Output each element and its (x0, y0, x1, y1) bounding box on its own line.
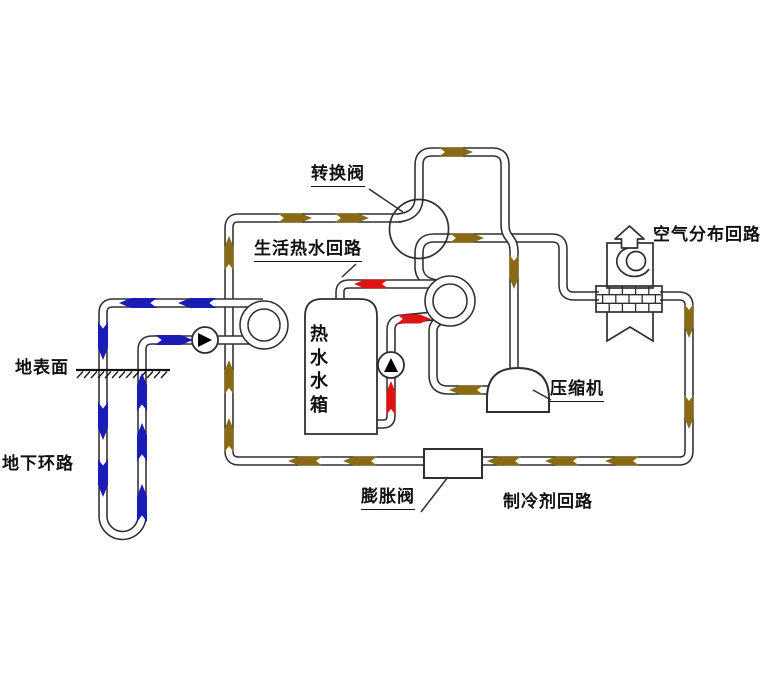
hot-water-tank-label: 热水水箱 (310, 323, 332, 417)
diagram-canvas (0, 0, 760, 681)
compressor-label: 压缩机 (550, 380, 604, 402)
ground-surface-hatch-icon (76, 370, 170, 378)
air-handler-fan-icon (627, 252, 646, 271)
expansion-valve-icon (424, 449, 482, 478)
desuperheater-coil-icon (429, 280, 471, 322)
air-duct (607, 243, 653, 288)
switch-valve-label: 转换阀 (311, 165, 365, 187)
underground-loop-label: 地下环路 (2, 455, 74, 474)
dhw-loop-label: 生活热水回路 (254, 240, 362, 262)
refrigerant-loop-pipes (229, 152, 689, 461)
air-outlet-arrow-icon (615, 226, 644, 248)
refrigerant-loop-label: 制冷剂回路 (503, 493, 593, 512)
air-distribution-loop-label: 空气分布回路 (653, 226, 760, 245)
hot-water-pump-icon (378, 352, 404, 378)
heat-pump-diagram: 转换阀 生活热水回路 空气分布回路 热水水箱 地表面 地下环路 压缩机 膨胀阀 … (0, 0, 760, 681)
duct-outlet-zigzag (607, 312, 653, 341)
expansion-valve-label: 膨胀阀 (361, 488, 415, 510)
compressor-icon (487, 368, 549, 412)
ground-surface-label: 地表面 (15, 359, 69, 378)
circulation-pump-icon (192, 327, 218, 353)
